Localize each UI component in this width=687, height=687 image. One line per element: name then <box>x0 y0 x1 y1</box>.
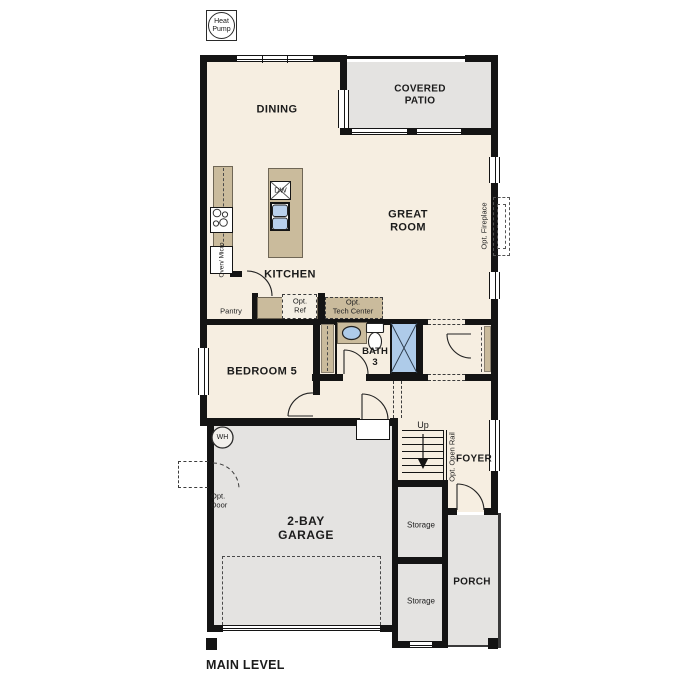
wall-storage-divider <box>398 557 444 564</box>
garage-apron-dash <box>222 556 223 625</box>
wall <box>312 374 343 381</box>
bath-vanity <box>337 322 367 344</box>
room-label-foyer: FOYER <box>456 453 492 465</box>
room-label-kitchen: KITCHEN <box>264 269 316 282</box>
label-up: Up <box>417 420 429 430</box>
porch-post <box>488 638 498 649</box>
wall-stairs-bottom <box>398 480 448 487</box>
shower <box>390 322 418 374</box>
label-dw: DW <box>274 186 287 195</box>
label-wh: WH <box>217 433 229 441</box>
wall <box>465 374 491 381</box>
label-opt-ref: Opt. Ref <box>293 297 307 314</box>
room-label-bath3: BATH 3 <box>362 347 388 369</box>
room-label-great-room: GREAT ROOM <box>388 208 428 233</box>
label-oven-micro: Oven/ Micro <box>218 242 225 277</box>
wall-entry <box>443 508 457 515</box>
patio-wall-top <box>347 56 465 59</box>
garage-apron-dash <box>222 556 380 557</box>
room-label-dining: DINING <box>257 104 298 117</box>
room-label-storage-lower: Storage <box>407 596 435 605</box>
floor-plan: DINING COVERED PATIO GREAT ROOM KITCHEN … <box>0 0 687 687</box>
wall <box>200 55 237 62</box>
wall-garage-top <box>200 418 360 426</box>
garage-apron-dash <box>380 556 381 625</box>
label-opt-fireplace: Opt. Fireplace <box>481 202 490 249</box>
closet-rod-dash <box>481 327 482 372</box>
cased-opening <box>428 374 465 381</box>
wall <box>207 625 223 632</box>
kitchen-sink <box>270 202 290 231</box>
window-bedroom5 <box>198 348 209 395</box>
wall-bedroom5 <box>313 319 320 395</box>
closet-rod-dash <box>327 326 328 371</box>
room-label-porch: PORCH <box>453 576 491 588</box>
patio-slider <box>352 128 407 135</box>
window-great-room <box>489 272 500 299</box>
label-opt-door: Opt. Door <box>211 492 227 509</box>
window <box>237 55 313 62</box>
room-label-covered-patio: COVERED PATIO <box>394 84 446 107</box>
plan-title: MAIN LEVEL <box>206 658 285 672</box>
wall <box>207 425 214 632</box>
plan-marker <box>206 638 217 650</box>
wall <box>366 374 428 381</box>
wall-entry <box>484 508 498 515</box>
wall <box>380 625 398 632</box>
opt-door-box <box>178 461 208 488</box>
label-heat-pump: Heat Pump <box>212 17 230 33</box>
window <box>338 90 349 128</box>
window-great-room <box>489 157 500 183</box>
cased-opening-foyer <box>393 381 402 418</box>
cooktop <box>210 207 233 233</box>
porch-edge-right <box>498 513 501 648</box>
room-label-bedroom5: BEDROOM 5 <box>227 366 297 379</box>
window <box>410 641 432 648</box>
label-opt-open-rail: Opt. Open Rail <box>448 432 457 482</box>
garage-step <box>356 419 390 440</box>
closet-shelf <box>484 326 491 372</box>
label-pantry: Pantry <box>220 308 242 317</box>
wall <box>465 319 491 325</box>
window <box>417 128 461 135</box>
wall-garage-right <box>392 418 398 648</box>
room-label-storage-upper: Storage <box>407 520 435 529</box>
cased-opening <box>428 319 465 325</box>
label-opt-tech-center: Opt. Tech Center <box>333 298 373 315</box>
garage-door <box>223 625 380 631</box>
opt-fireplace-box-inner <box>497 204 506 249</box>
room-label-garage: 2-BAY GARAGE <box>278 515 334 543</box>
